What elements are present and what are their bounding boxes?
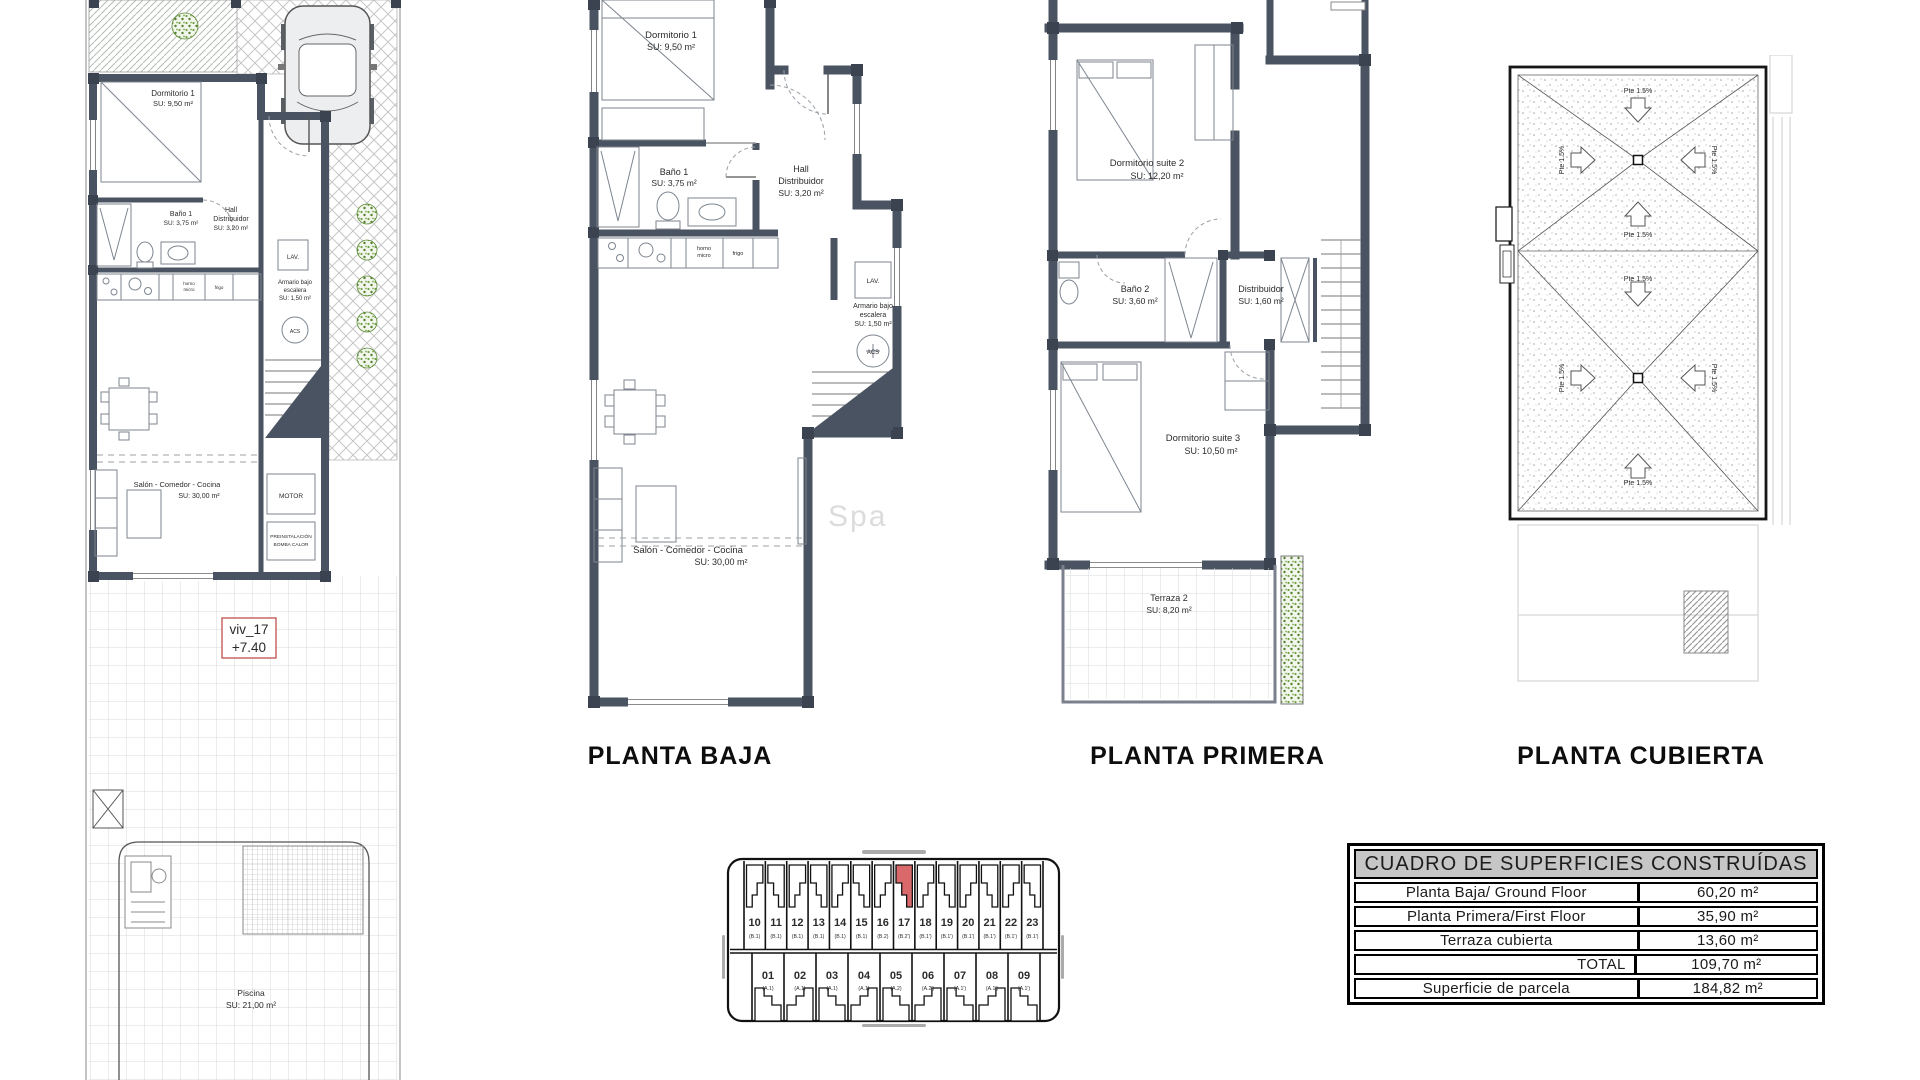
- fixture-label: micro: [697, 253, 710, 259]
- site-key-unit-number: 20: [962, 917, 974, 929]
- table-row-label: TOTAL: [1356, 956, 1637, 973]
- fixture-label: micro: [184, 287, 195, 292]
- fixture-label: PREINSTALACIÓN: [270, 533, 312, 540]
- site-key-unit-number: 07: [954, 970, 966, 982]
- site-key-unit-type: (A.1): [762, 986, 774, 992]
- table-row: Planta Baja/ Ground Floor60,20 m²: [1354, 882, 1818, 903]
- site-key-unit-number: 13: [813, 917, 825, 929]
- site-key-unit-type: (B.1'): [1005, 934, 1018, 940]
- ghost-hatch-block: [1684, 591, 1728, 653]
- site-key-unit-type: (B.1): [856, 934, 868, 940]
- fixture-label: LAV.: [287, 255, 299, 261]
- site-key-unit-number: 02: [794, 970, 806, 982]
- room-area: SU: 3,75 m²: [651, 178, 697, 188]
- site-key-unit-number: 11: [770, 917, 782, 929]
- stairs: [265, 360, 321, 438]
- fixture-label: ACS: [867, 350, 879, 356]
- room-area: SU: 3,20 m²: [214, 225, 250, 232]
- room-area: SU: 1,60 m²: [1238, 296, 1284, 306]
- roof-slope-label: Pte 1.5%: [1624, 276, 1652, 283]
- fixture-label: horno: [697, 246, 711, 252]
- interior-walls: [93, 120, 261, 576]
- roof-slope-label: Pte 1.5%: [1624, 232, 1652, 239]
- fixture-label: BOMBA CALOR: [274, 542, 309, 548]
- roof-slope-label: Pte 1.5%: [1710, 364, 1717, 392]
- room-label: escalera: [284, 288, 307, 294]
- roof-slope-label: Pte 1.5%: [1624, 88, 1652, 95]
- fixture-label: LAV.: [866, 278, 879, 285]
- site-key-unit-number: 01: [762, 970, 774, 982]
- room-area: SU: 9,50 m²: [647, 42, 695, 52]
- roof-slope-label: Pte 1.5%: [1710, 146, 1717, 174]
- fixture-label: MOTOR: [279, 493, 303, 500]
- surfaces-table: CUADRO DE SUPERFICIES CONSTRUÍDAS Planta…: [1347, 843, 1825, 1005]
- room-area: SU: 1,50 m²: [279, 296, 311, 302]
- room-area: SU: 30,00 m²: [694, 557, 747, 567]
- garden-hatch: [89, 0, 237, 72]
- room-label: Dormitorio 1: [645, 30, 697, 41]
- site-key-unit-type: (B.2'): [898, 934, 911, 940]
- unit-ref-label: viv_17: [229, 622, 268, 637]
- door-arcs: [97, 116, 309, 462]
- stairs: [1321, 240, 1361, 408]
- table-row: Superficie de parcela184,82 m²: [1354, 978, 1818, 999]
- site-key-unit-type: (B.1'): [983, 934, 996, 940]
- site-key-unit-number: 05: [890, 970, 902, 982]
- plan-title-cubierta: PLANTA CUBIERTA: [1478, 742, 1804, 774]
- room-area: SU: 3,60 m²: [1112, 296, 1158, 306]
- site-key-unit-type: (A.1): [858, 986, 870, 992]
- room-label: Terraza 2: [1150, 593, 1188, 603]
- room-label: Distribuidor: [213, 216, 249, 223]
- windows: [88, 120, 213, 581]
- site-key-unit-type: (B.1): [792, 934, 804, 940]
- stairs: [812, 368, 893, 430]
- site-key-unit-number: 17: [898, 917, 910, 929]
- room-area: SU: 30,00 m²: [178, 493, 220, 500]
- room-area: SU: 8,20 m²: [1146, 605, 1192, 615]
- roof-chimney: [1496, 207, 1514, 283]
- site-key-unit-type: (A.1'): [954, 986, 967, 992]
- room-label: Armario bajo: [278, 280, 313, 286]
- room-label: Dormitorio suite 2: [1110, 158, 1184, 169]
- roof-plan-panel: Pte 1.5% Pte 1.5% Pte 1.5% Pte 1.5% Pte …: [1488, 55, 1794, 722]
- site-key-unit-number: 18: [919, 917, 931, 929]
- site-key-unit-type: (A.1'): [1018, 986, 1031, 992]
- table-row-value: 13,60 m²: [1640, 932, 1816, 949]
- site-plan-panel: viv_17 +7.40 Dormitorio 1 SU: 9,50 m² Ba…: [73, 0, 404, 1080]
- site-key-unit-type: (B.1'): [1026, 934, 1039, 940]
- unit-level-tag: viv_17 +7.40: [222, 618, 276, 658]
- table-row-label: Superficie de parcela: [1356, 980, 1640, 997]
- ground-floor-panel: Dormitorio 1 SU: 9,50 m² Baño 1 SU: 3,75…: [576, 0, 912, 722]
- unit-level-label: +7.40: [232, 640, 266, 655]
- table-row-value: 109,70 m²: [1637, 956, 1816, 973]
- room-label: Distribuidor: [778, 176, 824, 186]
- site-key-unit-type: (B.1): [749, 934, 761, 940]
- room-label: Baño 1: [660, 167, 689, 177]
- table-row-value: 35,90 m²: [1640, 908, 1816, 925]
- room-label: Salón - Comedor - Cocina: [134, 480, 222, 489]
- room-label: Hall: [225, 207, 238, 214]
- room-label: Baño 1: [170, 211, 192, 218]
- room-label: Dormitorio suite 3: [1166, 433, 1240, 444]
- room-label: Baño 2: [1121, 284, 1150, 294]
- site-key-unit-type: (B.1'): [919, 934, 932, 940]
- site-key-unit-type: (B.1'): [941, 934, 954, 940]
- plant-icon: [172, 13, 198, 39]
- fixture-label: frigo: [733, 251, 744, 257]
- site-key-unit-number: 16: [877, 917, 889, 929]
- roof-slope-label: Pte 1.5%: [1559, 364, 1566, 392]
- room-labels: Dormitorio suite 2 SU: 12,20 m² Baño 2 S…: [1110, 158, 1284, 615]
- roof-slope-label: Pte 1.5%: [1624, 480, 1652, 487]
- site-key-unit-type: (B.2): [877, 934, 889, 940]
- room-label: escalera: [860, 312, 887, 319]
- plan-title-baja: PLANTA BAJA: [530, 742, 830, 774]
- table-row: TOTAL109,70 m²: [1354, 954, 1818, 975]
- room-area: SU: 12,20 m²: [1130, 171, 1183, 181]
- fixture-label: ACS: [290, 329, 301, 335]
- table-row-value: 60,20 m²: [1640, 884, 1816, 901]
- table-row-label: Planta Baja/ Ground Floor: [1356, 884, 1640, 901]
- site-key-unit-number: 03: [826, 970, 838, 982]
- room-area: SU: 9,50 m²: [153, 99, 194, 108]
- fixture-label: horno: [183, 281, 195, 286]
- site-key-unit-type: (A.1): [826, 986, 838, 992]
- table-row-value: 184,82 m²: [1640, 980, 1816, 997]
- site-key-diagram: 10(B.1)11(B.1)12(B.1)13(B.1)14(B.1)15(B.…: [722, 845, 1065, 1029]
- interior-walls: [1049, 0, 1365, 345]
- exterior-walls: [594, 0, 897, 702]
- site-key-unit-number: 06: [922, 970, 934, 982]
- room-area: SU: 3,75 m²: [164, 220, 200, 227]
- room-area: SU: 1,50 m²: [854, 321, 892, 328]
- site-key-unit-type: (A.2): [890, 986, 902, 992]
- site-key-unit-number: 23: [1026, 917, 1038, 929]
- room-area: SU: 10,50 m²: [1184, 446, 1237, 456]
- site-key-unit-number: 08: [986, 970, 998, 982]
- site-key-unit-number: 12: [791, 917, 803, 929]
- site-key-unit-number: 04: [858, 970, 871, 982]
- furniture: [594, 0, 891, 562]
- table-row: Planta Primera/First Floor35,90 m²: [1354, 906, 1818, 927]
- table-row-label: Planta Primera/First Floor: [1356, 908, 1640, 925]
- plan-title-primera: PLANTA PRIMERA: [1025, 742, 1390, 774]
- site-key-unit-number: 10: [749, 917, 761, 929]
- roof-slope-label: Pte 1.5%: [1559, 146, 1566, 174]
- site-key-unit-type: (A.1): [794, 986, 806, 992]
- site-key-unit-number: 22: [1005, 917, 1017, 929]
- surfaces-table-title: CUADRO DE SUPERFICIES CONSTRUÍDAS: [1354, 849, 1818, 879]
- first-floor-panel: Dormitorio suite 2 SU: 12,20 m² Baño 2 S…: [1035, 0, 1380, 722]
- site-key-unit-type: (B.1): [813, 934, 825, 940]
- room-label: Hall: [793, 164, 809, 174]
- surfaces-table-rows: Planta Baja/ Ground Floor60,20 m²Planta …: [1354, 882, 1818, 999]
- room-label: Dormitorio 1: [151, 89, 195, 98]
- table-row-label: Terraza cubierta: [1356, 932, 1640, 949]
- windows: [589, 30, 902, 707]
- room-area: SU: 3,20 m²: [778, 188, 824, 198]
- watermark: Spa: [828, 500, 887, 534]
- table-row: Terraza cubierta13,60 m²: [1354, 930, 1818, 951]
- room-label: Salón - Comedor - Cocina: [633, 545, 744, 556]
- site-key-unit-type: (B.1): [834, 934, 846, 940]
- site-key-unit-number: 21: [983, 917, 995, 929]
- site-key-unit-type: (B.1): [770, 934, 782, 940]
- site-key-unit-type: (B.1'): [962, 934, 975, 940]
- room-label: Armario bajo: [853, 303, 893, 310]
- site-key-unit-number: 14: [834, 917, 847, 929]
- site-key-unit-type: (A.1'): [986, 986, 999, 992]
- site-key-unit-number: 15: [855, 917, 867, 929]
- site-key-unit-number: 19: [941, 917, 953, 929]
- room-label: Piscina: [237, 988, 265, 998]
- site-key-unit-number: 09: [1018, 970, 1030, 982]
- site-key-unit-type: (A.2'): [922, 986, 935, 992]
- room-label: Distribuidor: [1238, 284, 1284, 294]
- exterior-walls: [93, 78, 325, 576]
- terrace: [1063, 556, 1303, 704]
- hedge-strip: [1281, 556, 1303, 704]
- room-area: SU: 21,00 m²: [226, 1000, 276, 1010]
- fixture-label: frigo: [215, 285, 224, 290]
